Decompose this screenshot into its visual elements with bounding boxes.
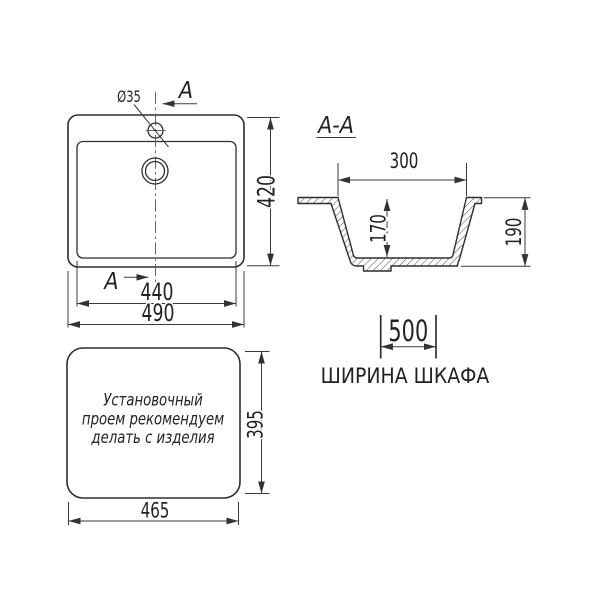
dia35-label: Ø35 <box>117 88 141 106</box>
section-title: A-A <box>316 113 354 139</box>
dim-420-label: 420 <box>253 175 281 208</box>
dim-170: 170 <box>367 199 391 257</box>
dim-300-label: 300 <box>390 150 419 174</box>
section-letter-top: A <box>177 78 193 104</box>
cutout-note-line1: Установочный <box>103 390 203 410</box>
section-cut-arrow-top: A <box>163 78 198 104</box>
technical-drawing-canvas: Ø35 A A 440 490 420 A-A <box>0 0 600 600</box>
dim-465-label: 465 <box>141 499 170 523</box>
cutout-note-line2: проем рекомендуем <box>82 409 224 429</box>
sink-dimension-drawing: Ø35 A A 440 490 420 A-A <box>0 0 600 600</box>
cabinet-width-caption: ШИРИНА ШКАФА <box>321 363 490 388</box>
section-letter-bottom: A <box>103 269 119 295</box>
dim-420: 420 <box>247 118 280 266</box>
dim-170-label: 170 <box>367 214 391 243</box>
dim-190-label: 190 <box>503 218 527 247</box>
dim-395: 395 <box>244 352 269 494</box>
dim-490-label: 490 <box>142 299 175 327</box>
top-view: Ø35 A A 440 490 420 <box>68 78 280 327</box>
cutout-note-line3: делать с изделия <box>91 427 215 447</box>
dim-300: 300 <box>338 150 467 196</box>
dia35-leader-line <box>134 105 169 148</box>
section-view: A-A 300 170 190 <box>298 113 531 271</box>
dim-465: 465 <box>69 499 239 525</box>
sink-bowl-outline <box>77 142 236 259</box>
dim-395-label: 395 <box>244 410 268 439</box>
cabinet-width: 500 ШИРИНА ШКАФА <box>321 315 490 389</box>
cutout-view: Установочный проем рекомендуем делать с … <box>67 348 270 525</box>
cabinet-width-value: 500 <box>388 315 428 348</box>
